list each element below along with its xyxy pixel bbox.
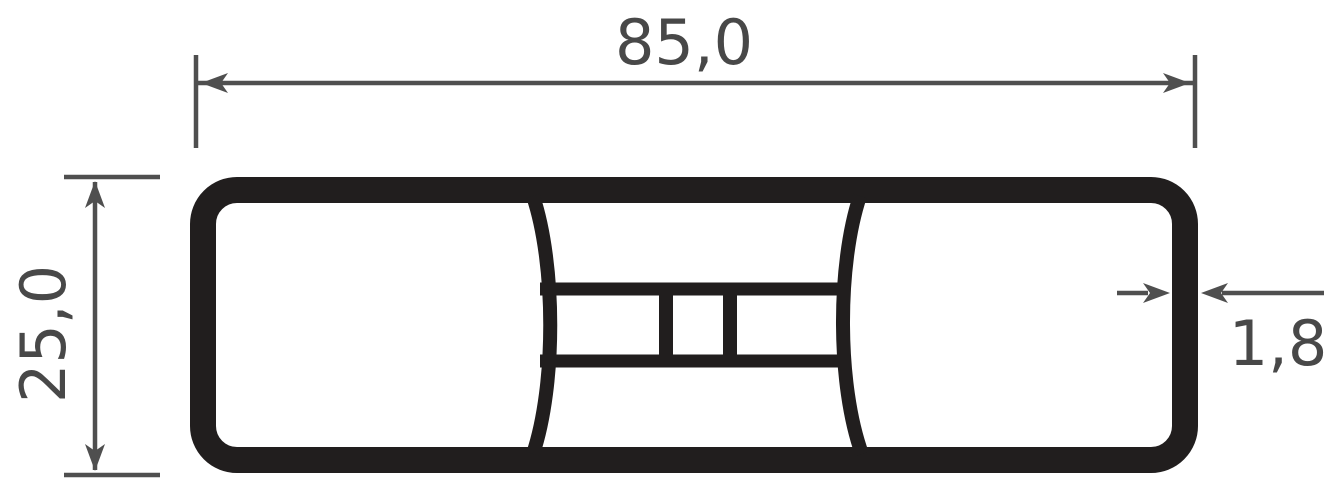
technical-drawing-page: 85,0 25,0 1,8 [0,0,1324,480]
width-dimension: 85,0 [196,6,1195,148]
height-dimension: 25,0 [7,177,160,475]
technical-drawing-canvas: 85,0 25,0 1,8 [0,0,1324,480]
profile-right-web [843,196,862,454]
wall-thickness-dimension: 1,8 [1117,283,1324,380]
profile-left-web [533,196,550,454]
width-dimension-label: 85,0 [615,6,753,79]
wall-thickness-label: 1,8 [1229,307,1324,380]
height-dimension-label: 25,0 [7,265,80,403]
profile-outer-wall [203,190,1185,460]
profile-cross-section [203,190,1185,460]
